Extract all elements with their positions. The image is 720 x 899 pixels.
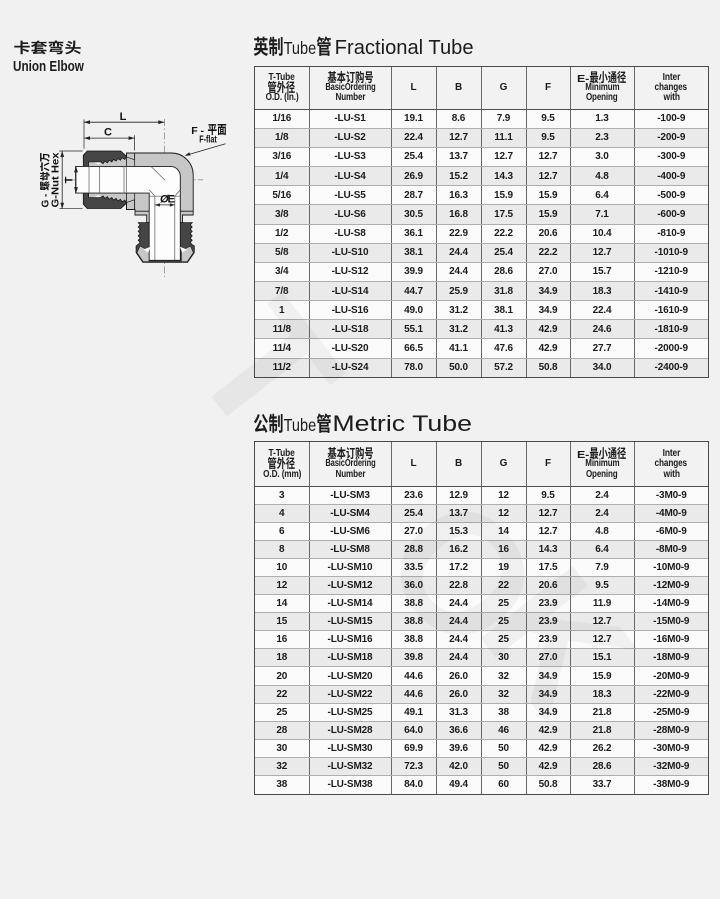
svg-text:Fractional Tube: Fractional Tube xyxy=(335,37,474,59)
svg-text:T: T xyxy=(64,176,76,183)
svg-text:Tube: Tube xyxy=(284,38,317,58)
svg-text:F-flat: F-flat xyxy=(199,134,217,145)
svg-text:E: E xyxy=(168,194,175,206)
svg-text:G-Nut Hex: G-Nut Hex xyxy=(51,152,62,207)
svg-text:L: L xyxy=(120,111,127,123)
svg-text:C: C xyxy=(104,127,112,139)
svg-text:Metric Tube: Metric Tube xyxy=(332,411,472,436)
